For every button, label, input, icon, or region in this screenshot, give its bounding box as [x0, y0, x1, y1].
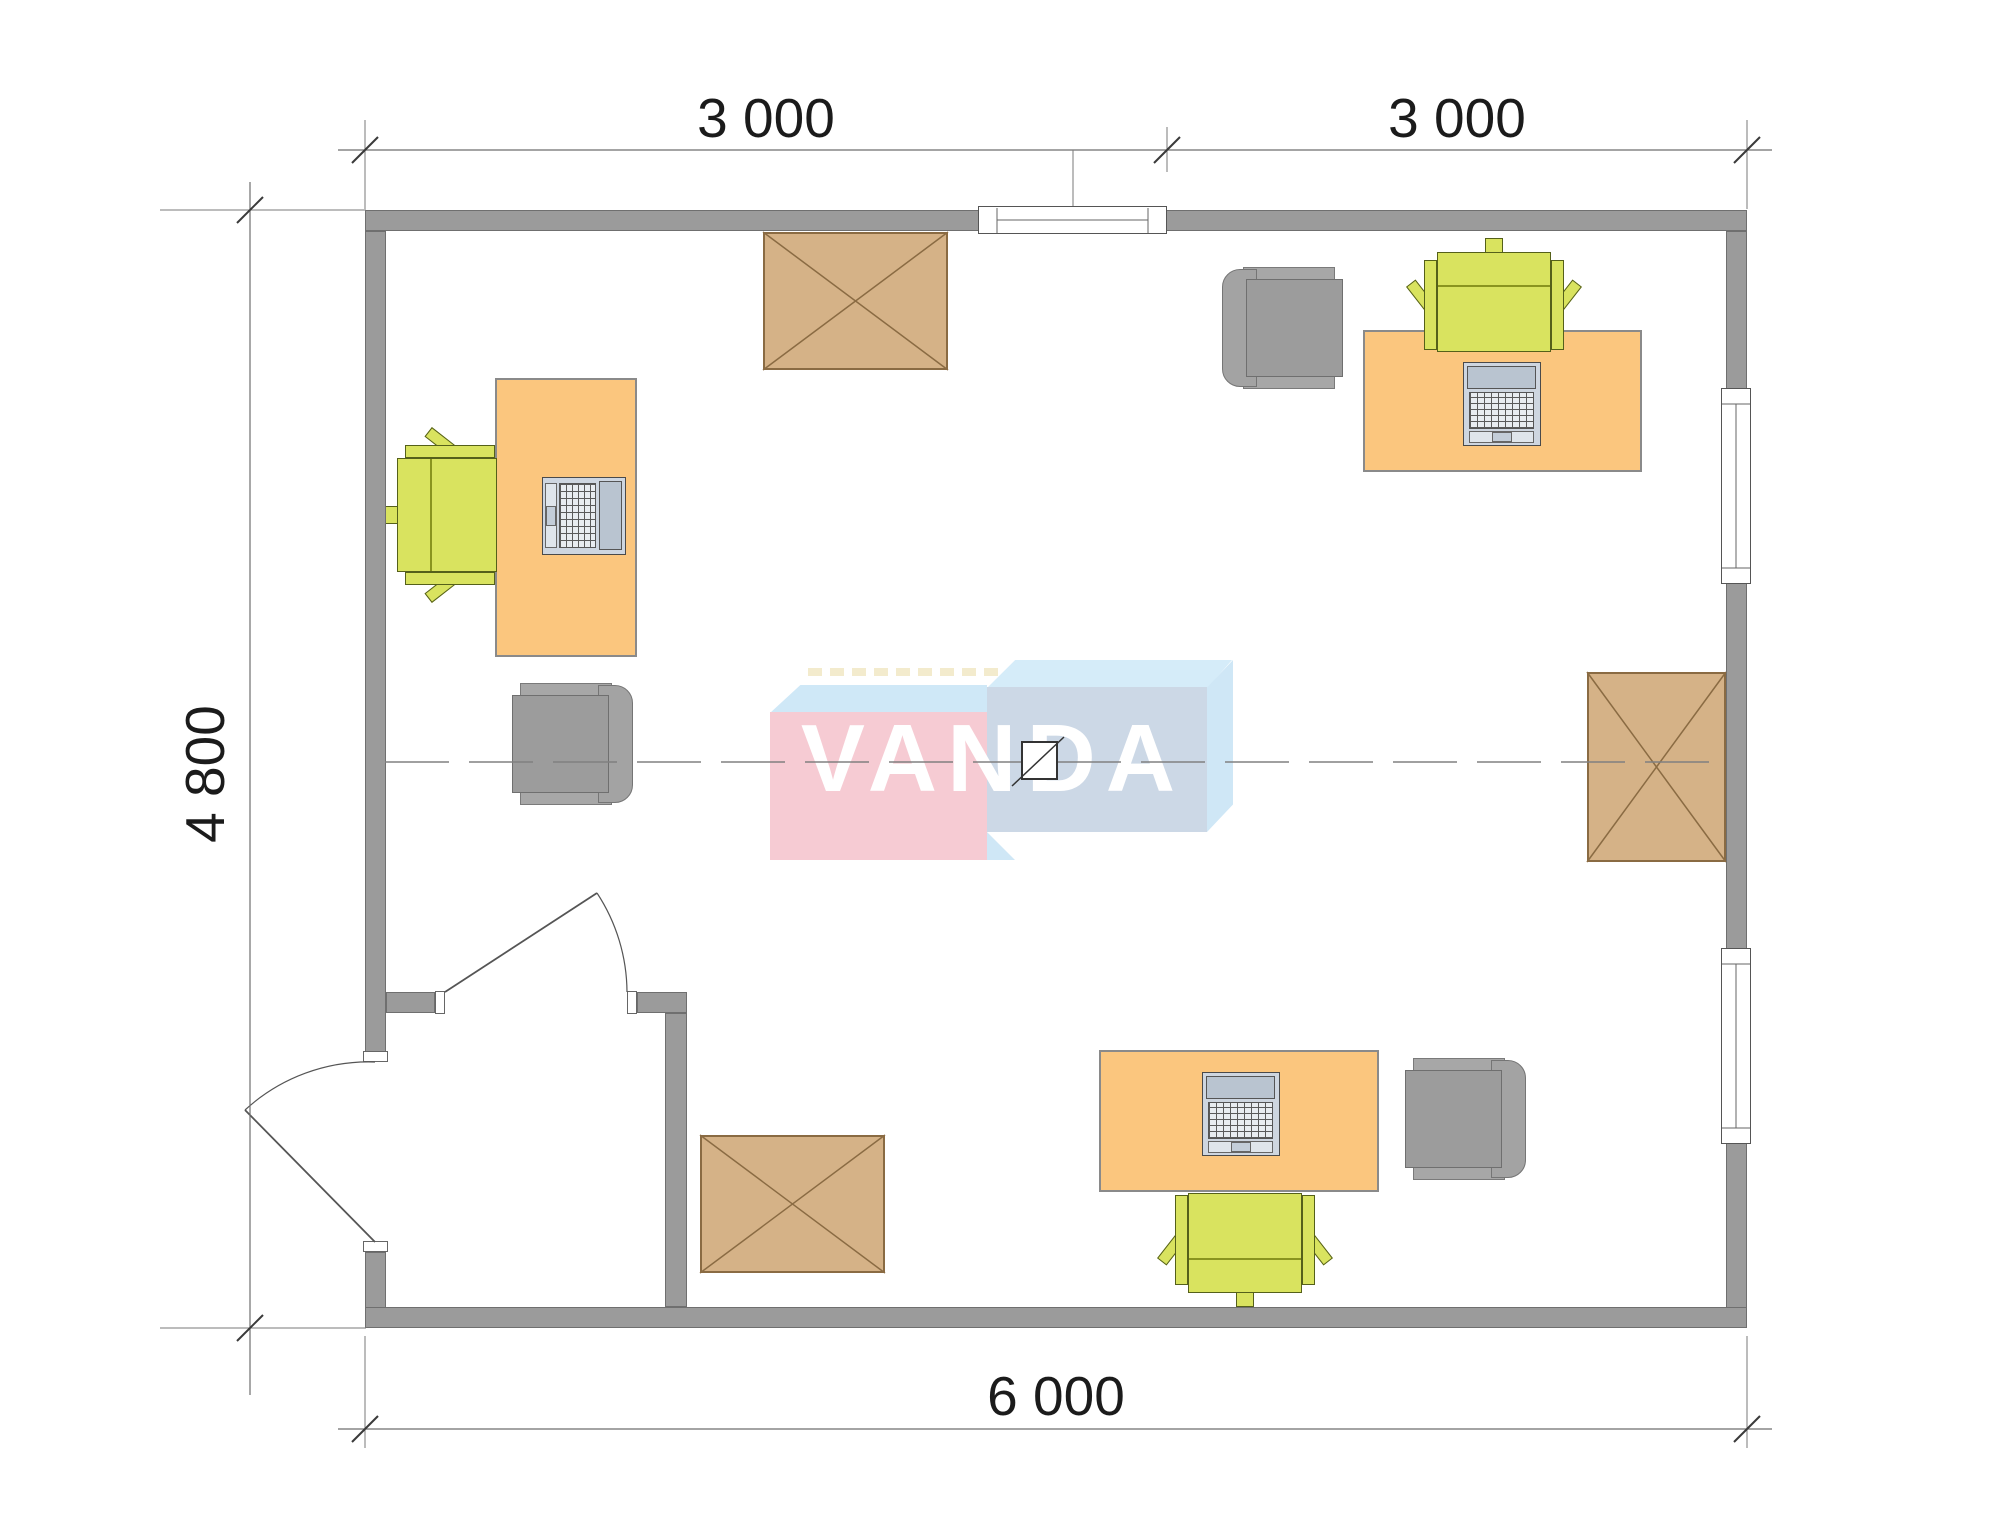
dimension-top-right: 3 000 [1257, 86, 1657, 150]
dimension-left: 4 800 [173, 574, 237, 974]
dimension-bottom: 6 000 [856, 1364, 1256, 1428]
dimension-top-left: 3 000 [566, 86, 966, 150]
door-exterior [245, 1062, 375, 1242]
plan-linework [0, 0, 2000, 1520]
door-interior [445, 893, 627, 992]
floor-plan: VANDA [0, 0, 2000, 1520]
